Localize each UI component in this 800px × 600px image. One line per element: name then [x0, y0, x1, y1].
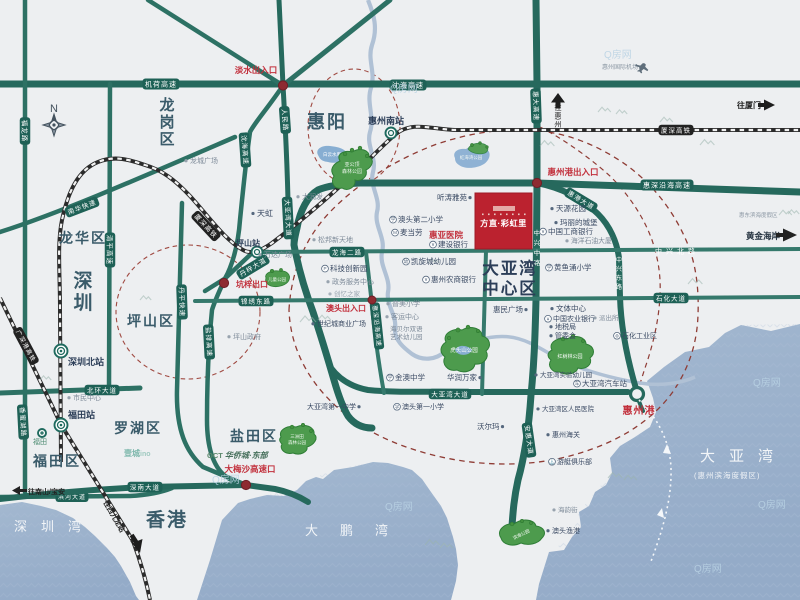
svg-text:大润发: 大润发 [302, 192, 323, 201]
svg-text:儿童公园: 儿童公园 [268, 276, 286, 283]
svg-text:大亚湾第一中学: 大亚湾第一中学 [307, 402, 356, 411]
svg-text:惠州国际机场: 惠州国际机场 [602, 63, 638, 71]
svg-text:往惠州: 往惠州 [554, 103, 561, 129]
svg-text:坑梓出口: 坑梓出口 [236, 279, 268, 289]
svg-text:¥: ¥ [432, 242, 435, 247]
svg-text:惠民广场: 惠民广场 [493, 304, 523, 314]
svg-text:往厦门: 往厦门 [737, 100, 761, 110]
svg-text:森林公园: 森林公园 [288, 439, 306, 446]
svg-text:学: 学 [395, 403, 400, 409]
svg-text:麦当劳: 麦当劳 [400, 227, 423, 237]
svg-text:地税局: 地税局 [555, 322, 576, 331]
svg-text:中兴北路: 中兴北路 [655, 247, 699, 256]
svg-text:学: 学 [391, 216, 396, 222]
svg-text:OCT 华侨城·东部: OCT 华侨城·东部 [207, 451, 270, 460]
svg-text:客运中心: 客运中心 [391, 312, 419, 321]
svg-text:中国农业银行: 中国农业银行 [553, 314, 595, 323]
svg-text:厦深高铁: 厦深高铁 [661, 125, 691, 134]
svg-text:澳头出入口: 澳头出入口 [326, 303, 366, 313]
svg-text:Q房网: Q房网 [212, 473, 240, 486]
svg-text:惠州南站: 惠州南站 [368, 115, 404, 126]
svg-text:沃尔玛: 沃尔玛 [477, 421, 500, 431]
svg-text:海贝尔双语: 海贝尔双语 [390, 324, 423, 333]
svg-text:深圳湾: 深圳湾 [14, 519, 95, 534]
svg-text:龙华区: 龙华区 [58, 230, 107, 246]
svg-text:龙岗区: 龙岗区 [158, 96, 176, 148]
svg-text:坪山区: 坪山区 [127, 313, 175, 329]
svg-text:管委会: 管委会 [555, 331, 576, 340]
svg-text:车: 车 [575, 380, 580, 387]
svg-text:创忆之家: 创忆之家 [334, 289, 361, 298]
svg-text:龙海二路: 龙海二路 [332, 247, 362, 256]
svg-text:中国工商银行: 中国工商银行 [548, 226, 593, 236]
svg-text:往南山/宝安: 往南山/宝安 [28, 487, 65, 496]
svg-text:游艇俱乐部: 游艇俱乐部 [557, 457, 592, 466]
svg-text:澳头第一小学: 澳头第一小学 [402, 402, 444, 411]
svg-text:P: P [323, 266, 326, 271]
svg-text:机荷高速: 机荷高速 [145, 80, 177, 89]
svg-text:惠州港出入口: 惠州港出入口 [547, 167, 598, 177]
svg-text:幼: 幼 [404, 258, 409, 265]
svg-text:方直·彩虹里: 方直·彩虹里 [480, 218, 527, 228]
svg-text:深圳: 深圳 [73, 269, 94, 314]
svg-text:澳头渔港: 澳头渔港 [552, 526, 580, 535]
svg-text:惠深沿海高速: 惠深沿海高速 [643, 181, 691, 190]
svg-text:Q房网: Q房网 [604, 48, 632, 61]
svg-text:大亚湾大道: 大亚湾大道 [431, 389, 469, 398]
svg-text:世纪城商业广场: 世纪城商业广场 [317, 319, 366, 328]
svg-text:坪山站: 坪山站 [236, 238, 260, 248]
svg-text:锦绣东路: 锦绣东路 [241, 296, 271, 305]
svg-text:派出所: 派出所 [599, 313, 619, 322]
svg-text:艺术幼儿园: 艺术幼儿园 [390, 332, 423, 341]
svg-text:红树林公园: 红树林公园 [557, 353, 582, 360]
svg-text:深南大道: 深南大道 [130, 482, 160, 491]
svg-text:建设银行: 建设银行 [438, 239, 468, 249]
svg-text:Q房网: Q房网 [385, 500, 413, 513]
svg-text:大亚湾区人民医院: 大亚湾区人民医院 [542, 404, 595, 413]
svg-text:惠州港: 惠州港 [623, 404, 656, 417]
svg-text:福田: 福田 [33, 437, 47, 446]
svg-text:清平高速: 清平高速 [106, 235, 115, 265]
svg-text:惠东滨海度假区: 惠东滨海度假区 [739, 211, 778, 219]
svg-text:金澳中学: 金澳中学 [395, 372, 425, 382]
svg-text:福田区: 福田区 [32, 453, 81, 469]
svg-text:惠亚医院: 惠亚医院 [429, 230, 464, 240]
svg-text:惠州海关: 惠州海关 [552, 430, 580, 439]
svg-text:海洋石油大厦: 海洋石油大厦 [571, 236, 612, 245]
svg-text:深圳北站: 深圳北站 [68, 356, 104, 367]
svg-text:惠州农商银行: 惠州农商银行 [431, 274, 476, 284]
svg-text:市民中心: 市民中心 [73, 393, 101, 402]
svg-text:万达广场: 万达广场 [264, 250, 292, 259]
svg-text:龙城广场: 龙城广场 [190, 156, 218, 165]
svg-text:普美小学: 普美小学 [392, 299, 420, 308]
svg-text:虹海湾公园: 虹海湾公园 [460, 154, 483, 161]
svg-text:M: M [393, 230, 397, 235]
svg-text:Q房网: Q房网 [758, 498, 786, 511]
svg-text:松邦新天地: 松邦新天地 [318, 235, 353, 244]
svg-text:大鹏湾: 大鹏湾 [305, 523, 410, 538]
svg-text:黄鱼涌小学: 黄鱼涌小学 [554, 262, 592, 272]
svg-text:大梅沙高速口: 大梅沙高速口 [224, 464, 275, 474]
svg-text:石化大道: 石化大道 [656, 293, 686, 302]
svg-text:文体中心: 文体中心 [556, 303, 586, 313]
svg-text:¥: ¥ [425, 277, 428, 282]
svg-text:大亚湾: 大亚湾 [482, 258, 538, 278]
svg-text:亚公顶: 亚公顶 [344, 162, 359, 168]
svg-text:天虹: 天虹 [257, 209, 273, 218]
svg-text:听涛雅苑: 听涛雅苑 [437, 192, 467, 202]
svg-text:北环大道: 北环大道 [87, 385, 117, 394]
svg-text:福龙路: 福龙路 [21, 120, 30, 143]
svg-text:¥: ¥ [542, 229, 545, 234]
svg-text:(惠州滨海度假区): (惠州滨海度假区) [694, 470, 761, 480]
svg-text:森林公园: 森林公园 [342, 168, 362, 175]
svg-text:¥: ¥ [547, 316, 550, 321]
svg-text:学: 学 [547, 264, 552, 270]
svg-text:Q房网: Q房网 [390, 82, 418, 95]
svg-text:澳头第二小学: 澳头第二小学 [398, 214, 443, 224]
svg-text:大亚湾实验幼儿园: 大亚湾实验幼儿园 [540, 370, 592, 379]
svg-text:淡水出入口: 淡水出入口 [235, 65, 278, 75]
svg-text:玛丽的城堡: 玛丽的城堡 [560, 217, 598, 227]
svg-text:惠阳: 惠阳 [307, 112, 347, 132]
svg-text:政务服务中心: 政务服务中心 [332, 277, 374, 286]
svg-text:罗湖区: 罗湖区 [114, 420, 162, 436]
svg-text:石化工业区: 石化工业区 [622, 331, 657, 340]
svg-text:海韵街: 海韵街 [558, 505, 578, 514]
svg-text:大亚湾: 大亚湾 [700, 448, 787, 465]
svg-text:坪山政府: 坪山政府 [233, 332, 261, 341]
svg-text:Q房网: Q房网 [694, 562, 722, 575]
svg-text:凯旋城幼儿园: 凯旋城幼儿园 [411, 256, 456, 266]
svg-text:学: 学 [388, 374, 393, 380]
svg-text:科技创新园: 科技创新园 [330, 263, 368, 273]
svg-text:虎头山公园: 虎头山公园 [450, 346, 478, 354]
svg-text:中心区: 中心区 [482, 278, 538, 298]
svg-text:黄金海岸: 黄金海岸 [746, 231, 781, 241]
svg-text:Q房网: Q房网 [753, 376, 781, 389]
svg-text:香港: 香港 [145, 509, 188, 531]
svg-text:华润万家: 华润万家 [447, 372, 477, 382]
svg-text:大亚湾汽车站: 大亚湾汽车站 [582, 378, 627, 388]
svg-text:⚓: ⚓ [549, 458, 555, 465]
svg-text:福田站: 福田站 [67, 409, 95, 420]
svg-text:天源花园: 天源花园 [556, 203, 586, 213]
svg-text:盐田区: 盐田区 [230, 428, 278, 444]
